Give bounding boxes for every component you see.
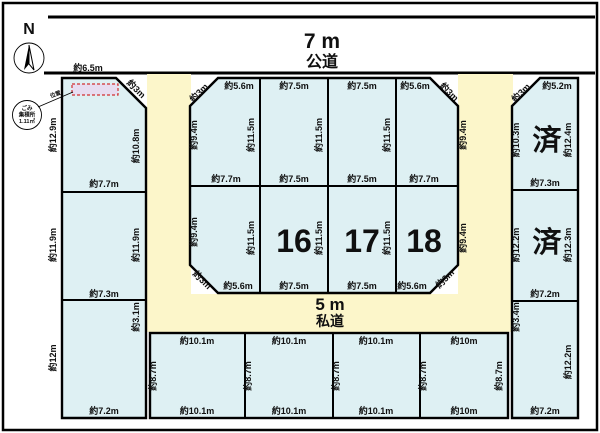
plot-16-number: 16 [276,223,312,259]
right-mid-sold-mark: 済 [532,226,562,259]
dim-left-top-right: 約10.8m [130,129,141,164]
dim-bottom3-left: 約8.7m [330,361,341,391]
site-plan: 7 m 公道 5 m 私道 N ごみ 集積所 1.11㎡ 位置 約6.5m 約3… [0,0,600,433]
dim-t1-left: 約9.4m [188,120,199,150]
dim-bottom2-top: 約10.1m [272,335,307,346]
garbage-balloon-line3: 1.11㎡ [19,117,35,125]
dim-right-bottom-bottom: 約7.2m [530,405,560,416]
dim-t1-bottom: 約7.7m [211,173,241,184]
private-road-left [147,74,191,332]
dim-b2-divider: 約11.5m [313,221,324,255]
dim-left-mid-bottom: 約7.3m [89,288,119,299]
dim-b4-right: 約9.4m [457,223,468,253]
dim-t3-top: 約7.5m [347,80,377,91]
dim-t2-divider: 約11.5m [313,118,324,152]
dim-t4-bottom: 約7.7m [409,173,439,184]
right-top-sold-mark: 済 [532,124,562,157]
dim-left-top-left: 約12.9m [47,118,58,153]
dim-t1-divider: 約11.5m [245,118,256,152]
dim-right-top-top: 約5.2m [542,80,572,91]
dim-left-top-bottom: 約7.7m [89,178,119,189]
dim-bottom4-top: 約10m [450,335,477,346]
dim-b1-divider: 約11.5m [245,221,256,255]
dim-b1-bottom: 約5.6m [223,280,253,291]
dim-right-mid-right: 約12.3m [562,228,573,263]
dim-left-mid-right: 約11.9m [130,228,141,262]
dim-b4-bottom: 約5.6m [397,280,427,291]
dim-t3-divider: 約11.5m [381,118,392,152]
dim-right-bottom-right: 約12.2m [562,345,573,380]
dim-right-top-left: 約10.3m [510,123,521,158]
dim-bottom3-top: 約10.1m [359,335,394,346]
dim-bottom1-top: 約10.1m [180,335,215,346]
dim-right-mid-bottom: 約7.2m [530,288,560,299]
dim-bottom3-bottom: 約10.1m [359,405,394,416]
dim-bottom2-bottom: 約10.1m [272,405,307,416]
public-road-name: 公道 [306,52,338,71]
dim-right-top-bottom: 約7.3m [530,177,560,188]
private-road-size: 5 m [315,295,344,314]
dim-bottom4-left: 約8.7m [417,361,428,391]
dim-right-top-right: 約12.4m [562,123,573,158]
public-road-size: 7 m [304,30,340,53]
land-plot-diagram: 7 m 公道 5 m 私道 N ごみ 集積所 1.11㎡ 位置 約6.5m 約3… [0,0,600,433]
dim-left-bottom-right-top: 約3.1m [130,302,141,332]
private-road-right [458,74,513,332]
dim-t4-top: 約5.6m [400,80,430,91]
dim-left-bottom-bottom: 約7.2m [89,405,119,416]
private-road-name: 私道 [316,313,344,329]
plot-17-number: 17 [344,223,380,259]
dim-bottom4-bottom: 約10m [450,405,477,416]
dim-left-top-top: 約6.5m [73,62,103,73]
dim-bottom1-bottom: 約10.1m [180,405,215,416]
garbage-balloon-line1: ごみ [21,104,33,112]
dim-left-mid-left: 約11.9m [47,228,58,262]
dim-t2-bottom: 約7.5m [279,173,309,184]
dim-bottom1-left: 約8.7m [147,361,158,391]
dim-b3-divider: 約11.5m [381,221,392,255]
dim-right-bottom-left-top: 約3.4m [510,302,521,332]
dim-t3-bottom: 約7.5m [347,173,377,184]
dim-bottom4-right: 約8.7m [493,361,504,391]
dim-right-mid-left: 約12.2m [510,228,521,263]
plot-18-number: 18 [406,223,442,259]
dim-t4-right: 約9.4m [457,120,468,150]
compass-north-label: N [23,21,35,38]
dim-bottom2-left: 約8.7m [242,361,253,391]
dim-b2-bottom: 約7.5m [279,280,309,291]
dim-b1-left: 約9.4m [188,217,199,247]
dim-b3-bottom: 約7.5m [347,280,377,291]
dim-t2-top: 約7.5m [279,80,309,91]
garbage-station-pad [72,84,118,95]
dim-t1-top: 約5.6m [224,80,254,91]
garbage-balloon-line2: 集積所 [18,111,36,119]
dim-left-bottom-left: 約12m [47,344,58,371]
